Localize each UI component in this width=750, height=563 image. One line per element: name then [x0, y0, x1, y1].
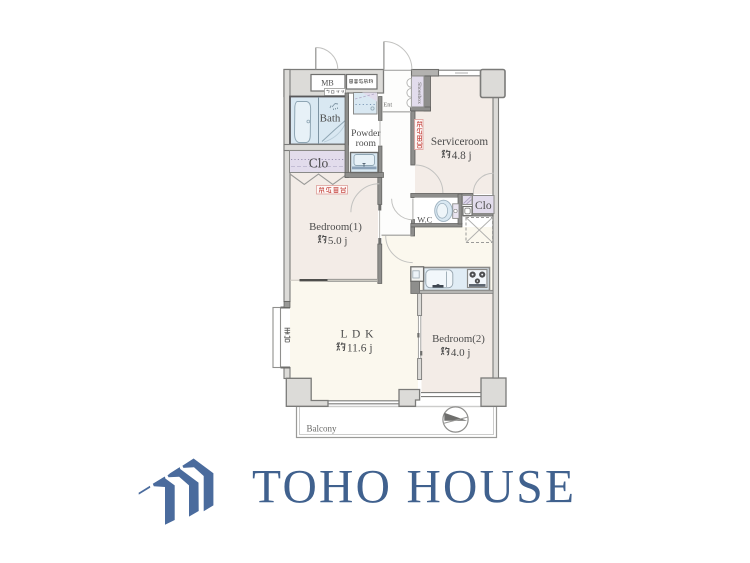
svg-text:L D K: L D K — [341, 329, 375, 341]
svg-text:4.0 j: 4.0 j — [451, 347, 471, 359]
svg-text:Shoesbox: Shoesbox — [416, 82, 422, 104]
svg-text:Ent: Ent — [383, 102, 392, 109]
svg-text:W.C: W.C — [417, 214, 432, 224]
svg-text:4.8 j: 4.8 j — [452, 150, 472, 162]
svg-text:Serviceroom: Serviceroom — [431, 136, 488, 148]
svg-text:Clo: Clo — [309, 156, 329, 171]
svg-text:Bedroom(2): Bedroom(2) — [432, 333, 485, 345]
svg-text:5.0 j: 5.0 j — [328, 235, 348, 247]
svg-text:Bath: Bath — [320, 113, 341, 125]
svg-text:Clo: Clo — [475, 200, 492, 212]
svg-text:TOHO HOUSE: TOHO HOUSE — [252, 462, 576, 514]
svg-text:Bedroom(1): Bedroom(1) — [309, 221, 362, 233]
svg-text:Balcony: Balcony — [307, 423, 337, 433]
svg-text:room: room — [356, 138, 377, 149]
svg-text:MB: MB — [321, 79, 333, 88]
svg-text:11.6 j: 11.6 j — [347, 343, 373, 355]
